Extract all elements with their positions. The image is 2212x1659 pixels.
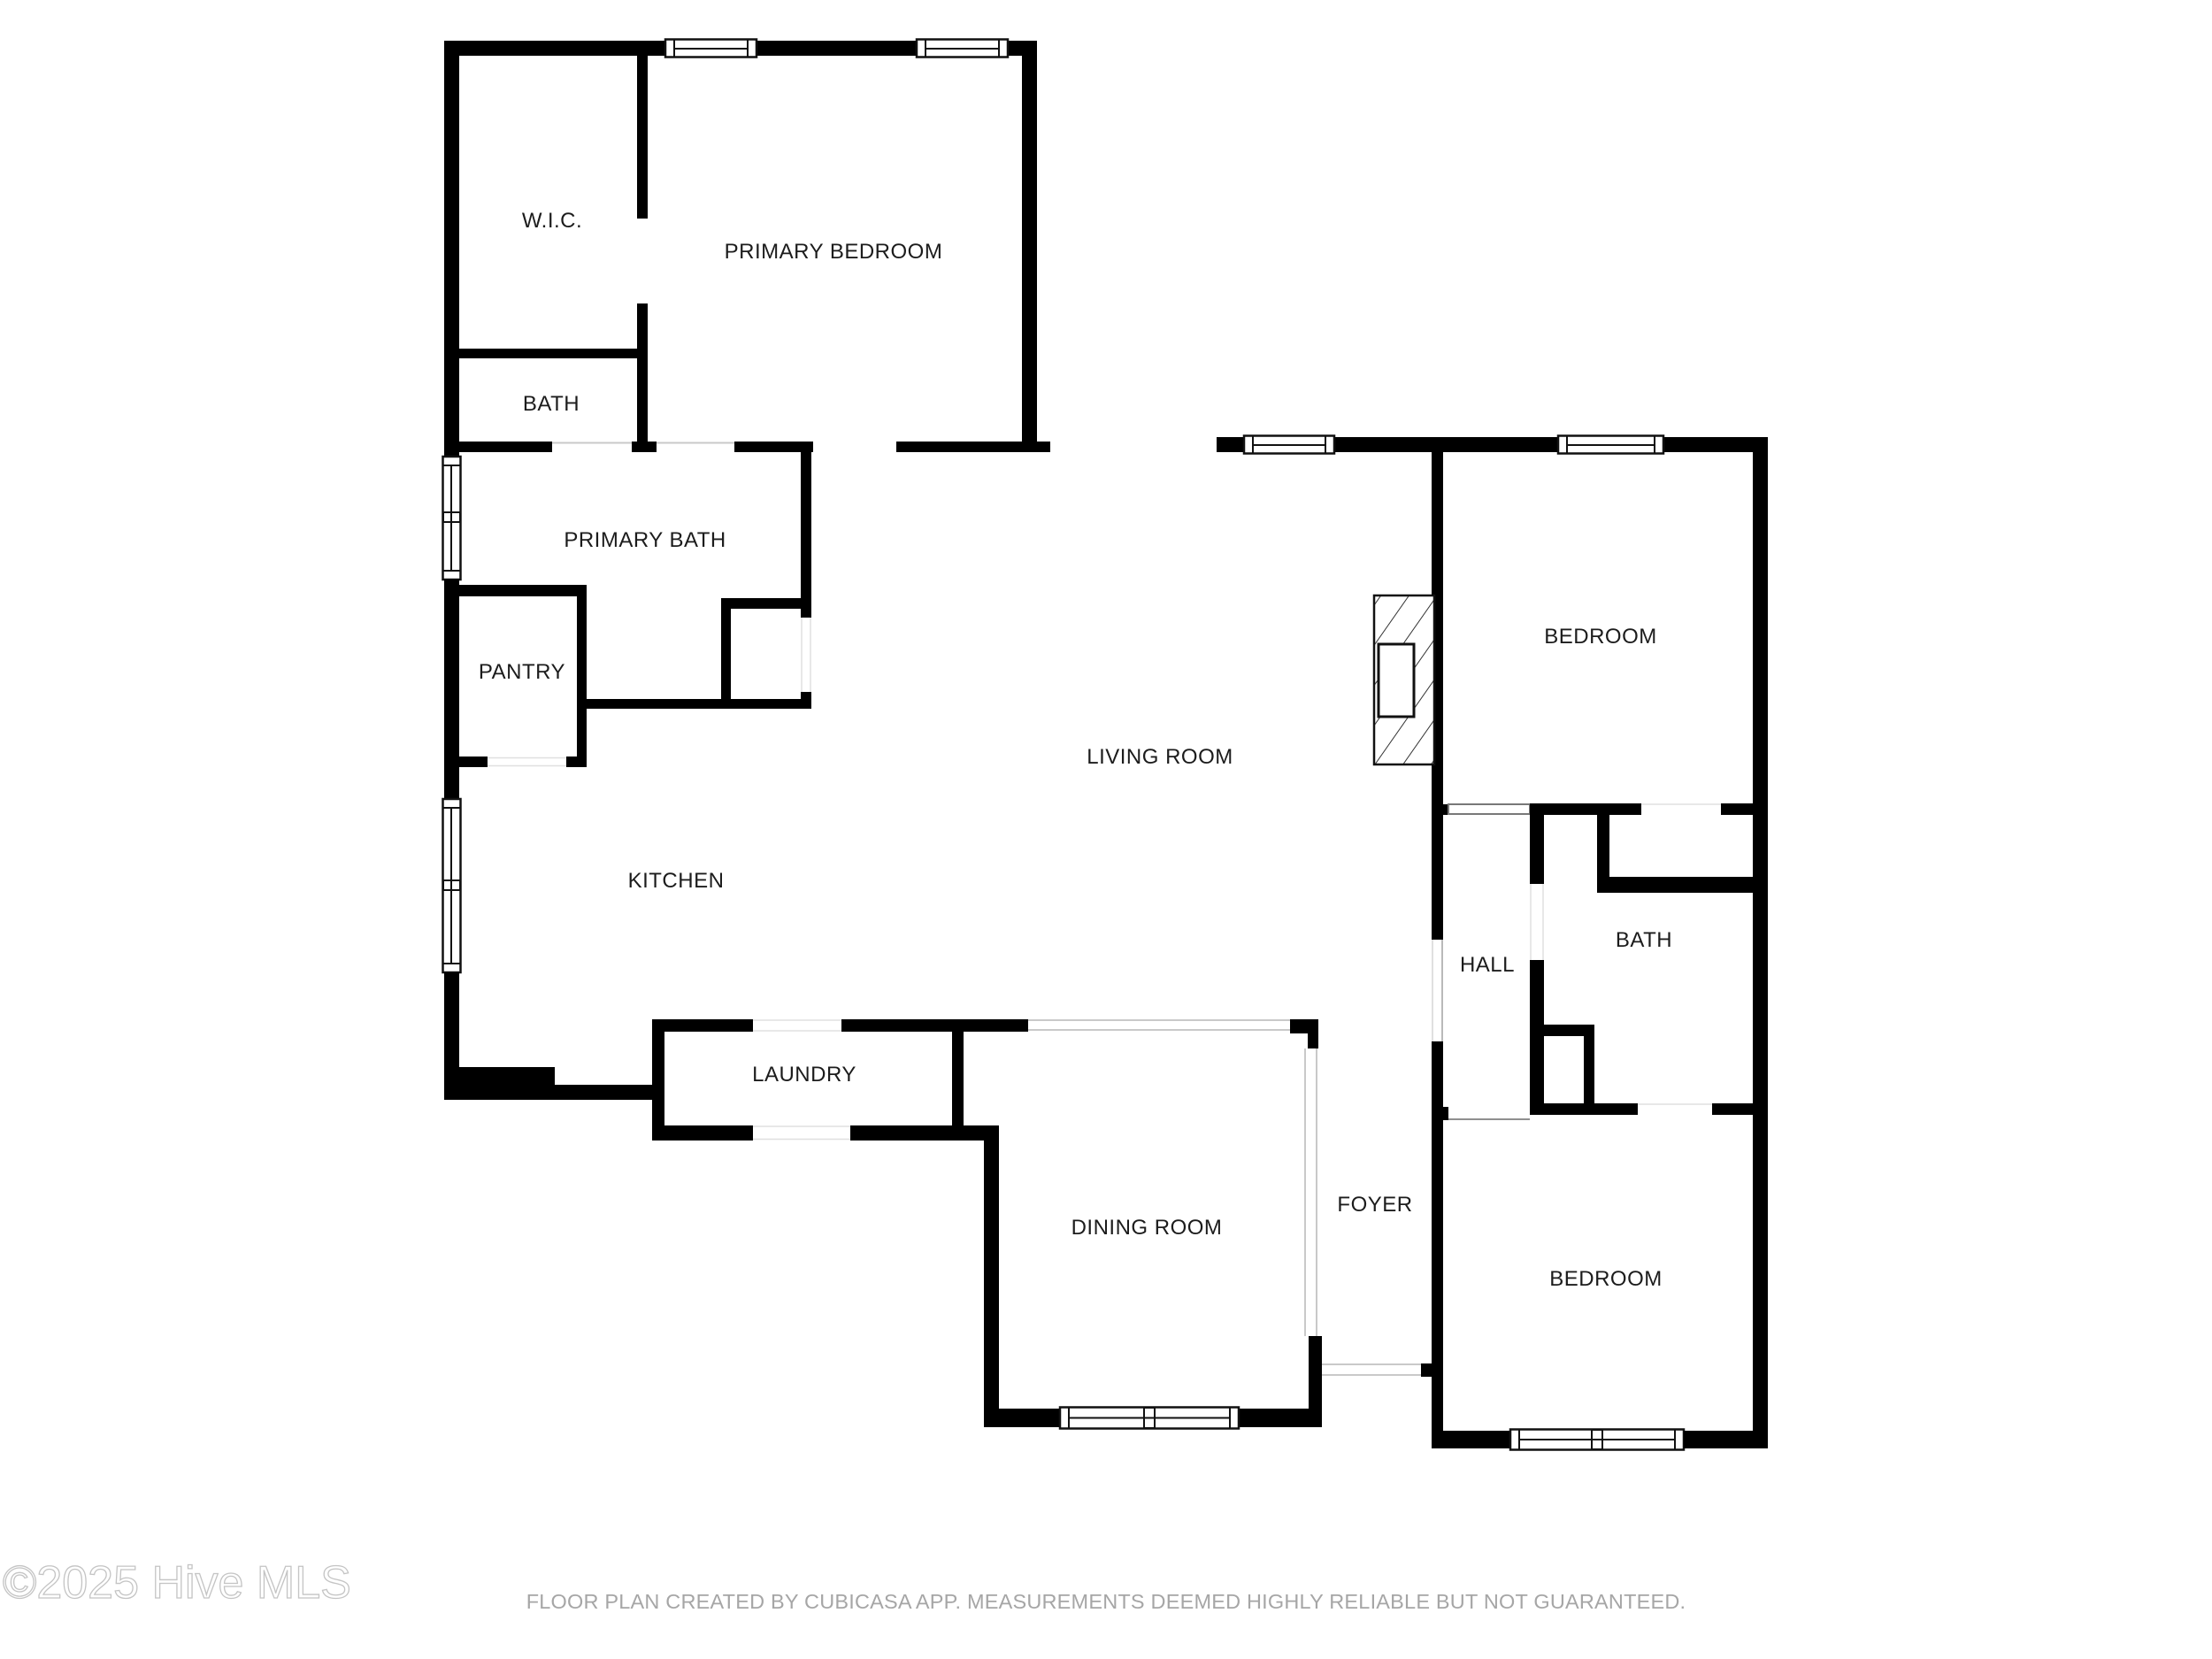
svg-text:LIVING ROOM: LIVING ROOM [1087, 745, 1233, 769]
svg-text:©2025 Hive MLS: ©2025 Hive MLS [3, 1557, 351, 1609]
svg-text:BEDROOM: BEDROOM [1549, 1267, 1663, 1291]
svg-text:FOYER: FOYER [1337, 1193, 1412, 1217]
svg-text:HALL: HALL [1460, 953, 1515, 977]
svg-text:BEDROOM: BEDROOM [1544, 625, 1657, 649]
svg-text:PRIMARY BEDROOM: PRIMARY BEDROOM [725, 240, 943, 264]
svg-text:PANTRY: PANTRY [479, 660, 565, 684]
svg-text:DINING ROOM: DINING ROOM [1071, 1216, 1223, 1240]
svg-text:W.I.C.: W.I.C. [522, 209, 582, 233]
svg-text:FLOOR PLAN CREATED BY CUBICASA: FLOOR PLAN CREATED BY CUBICASA APP. MEAS… [526, 1590, 1686, 1613]
svg-text:BATH: BATH [1616, 928, 1672, 952]
svg-text:BATH: BATH [523, 392, 580, 416]
svg-text:PRIMARY BATH: PRIMARY BATH [564, 528, 726, 552]
svg-text:LAUNDRY: LAUNDRY [752, 1063, 856, 1087]
svg-text:KITCHEN: KITCHEN [628, 869, 725, 893]
